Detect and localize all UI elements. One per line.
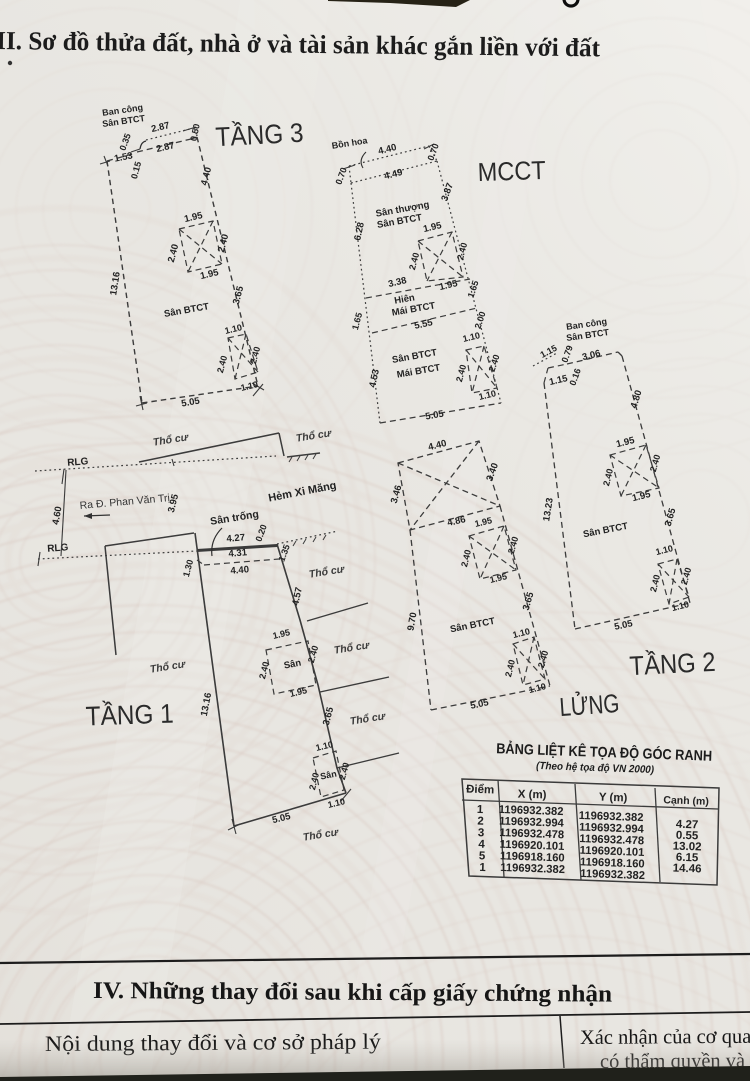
svg-text:1196932.382: 1196932.382: [580, 868, 645, 882]
svg-text:LỬNG: LỬNG: [558, 687, 620, 722]
svg-text:1: 1: [479, 862, 486, 874]
svg-text:1196932.382: 1196932.382: [500, 862, 565, 876]
svg-text:14.46: 14.46: [673, 863, 702, 876]
svg-text:Điểm: Điểm: [466, 784, 495, 797]
svg-text:4.40: 4.40: [230, 564, 249, 577]
svg-text:5: 5: [479, 850, 486, 862]
svg-text:TẦNG 1: TẦNG 1: [85, 697, 174, 731]
svg-text:RLG: RLG: [47, 542, 69, 554]
svg-text:TẦNG 2: TẦNG 2: [629, 646, 717, 681]
svg-text:1: 1: [477, 804, 484, 816]
svg-text:TẦNG 3: TẦNG 3: [215, 117, 305, 153]
svg-text:X (m): X (m): [518, 789, 547, 802]
svg-text:3: 3: [478, 827, 485, 839]
svg-text:RLG: RLG: [67, 456, 89, 468]
svg-text:Cạnh (m): Cạnh (m): [663, 794, 709, 808]
svg-text:4: 4: [478, 839, 485, 851]
svg-text:IV. Những thay đổi sau khi cấp: IV. Những thay đổi sau khi cấp giấy chứn…: [93, 978, 612, 1008]
svg-text:4.27: 4.27: [226, 532, 245, 545]
svg-text:2: 2: [477, 815, 484, 827]
svg-text:Y (m): Y (m): [599, 792, 628, 805]
svg-text:MCCT: MCCT: [477, 155, 546, 187]
svg-text:4.31: 4.31: [228, 547, 248, 560]
